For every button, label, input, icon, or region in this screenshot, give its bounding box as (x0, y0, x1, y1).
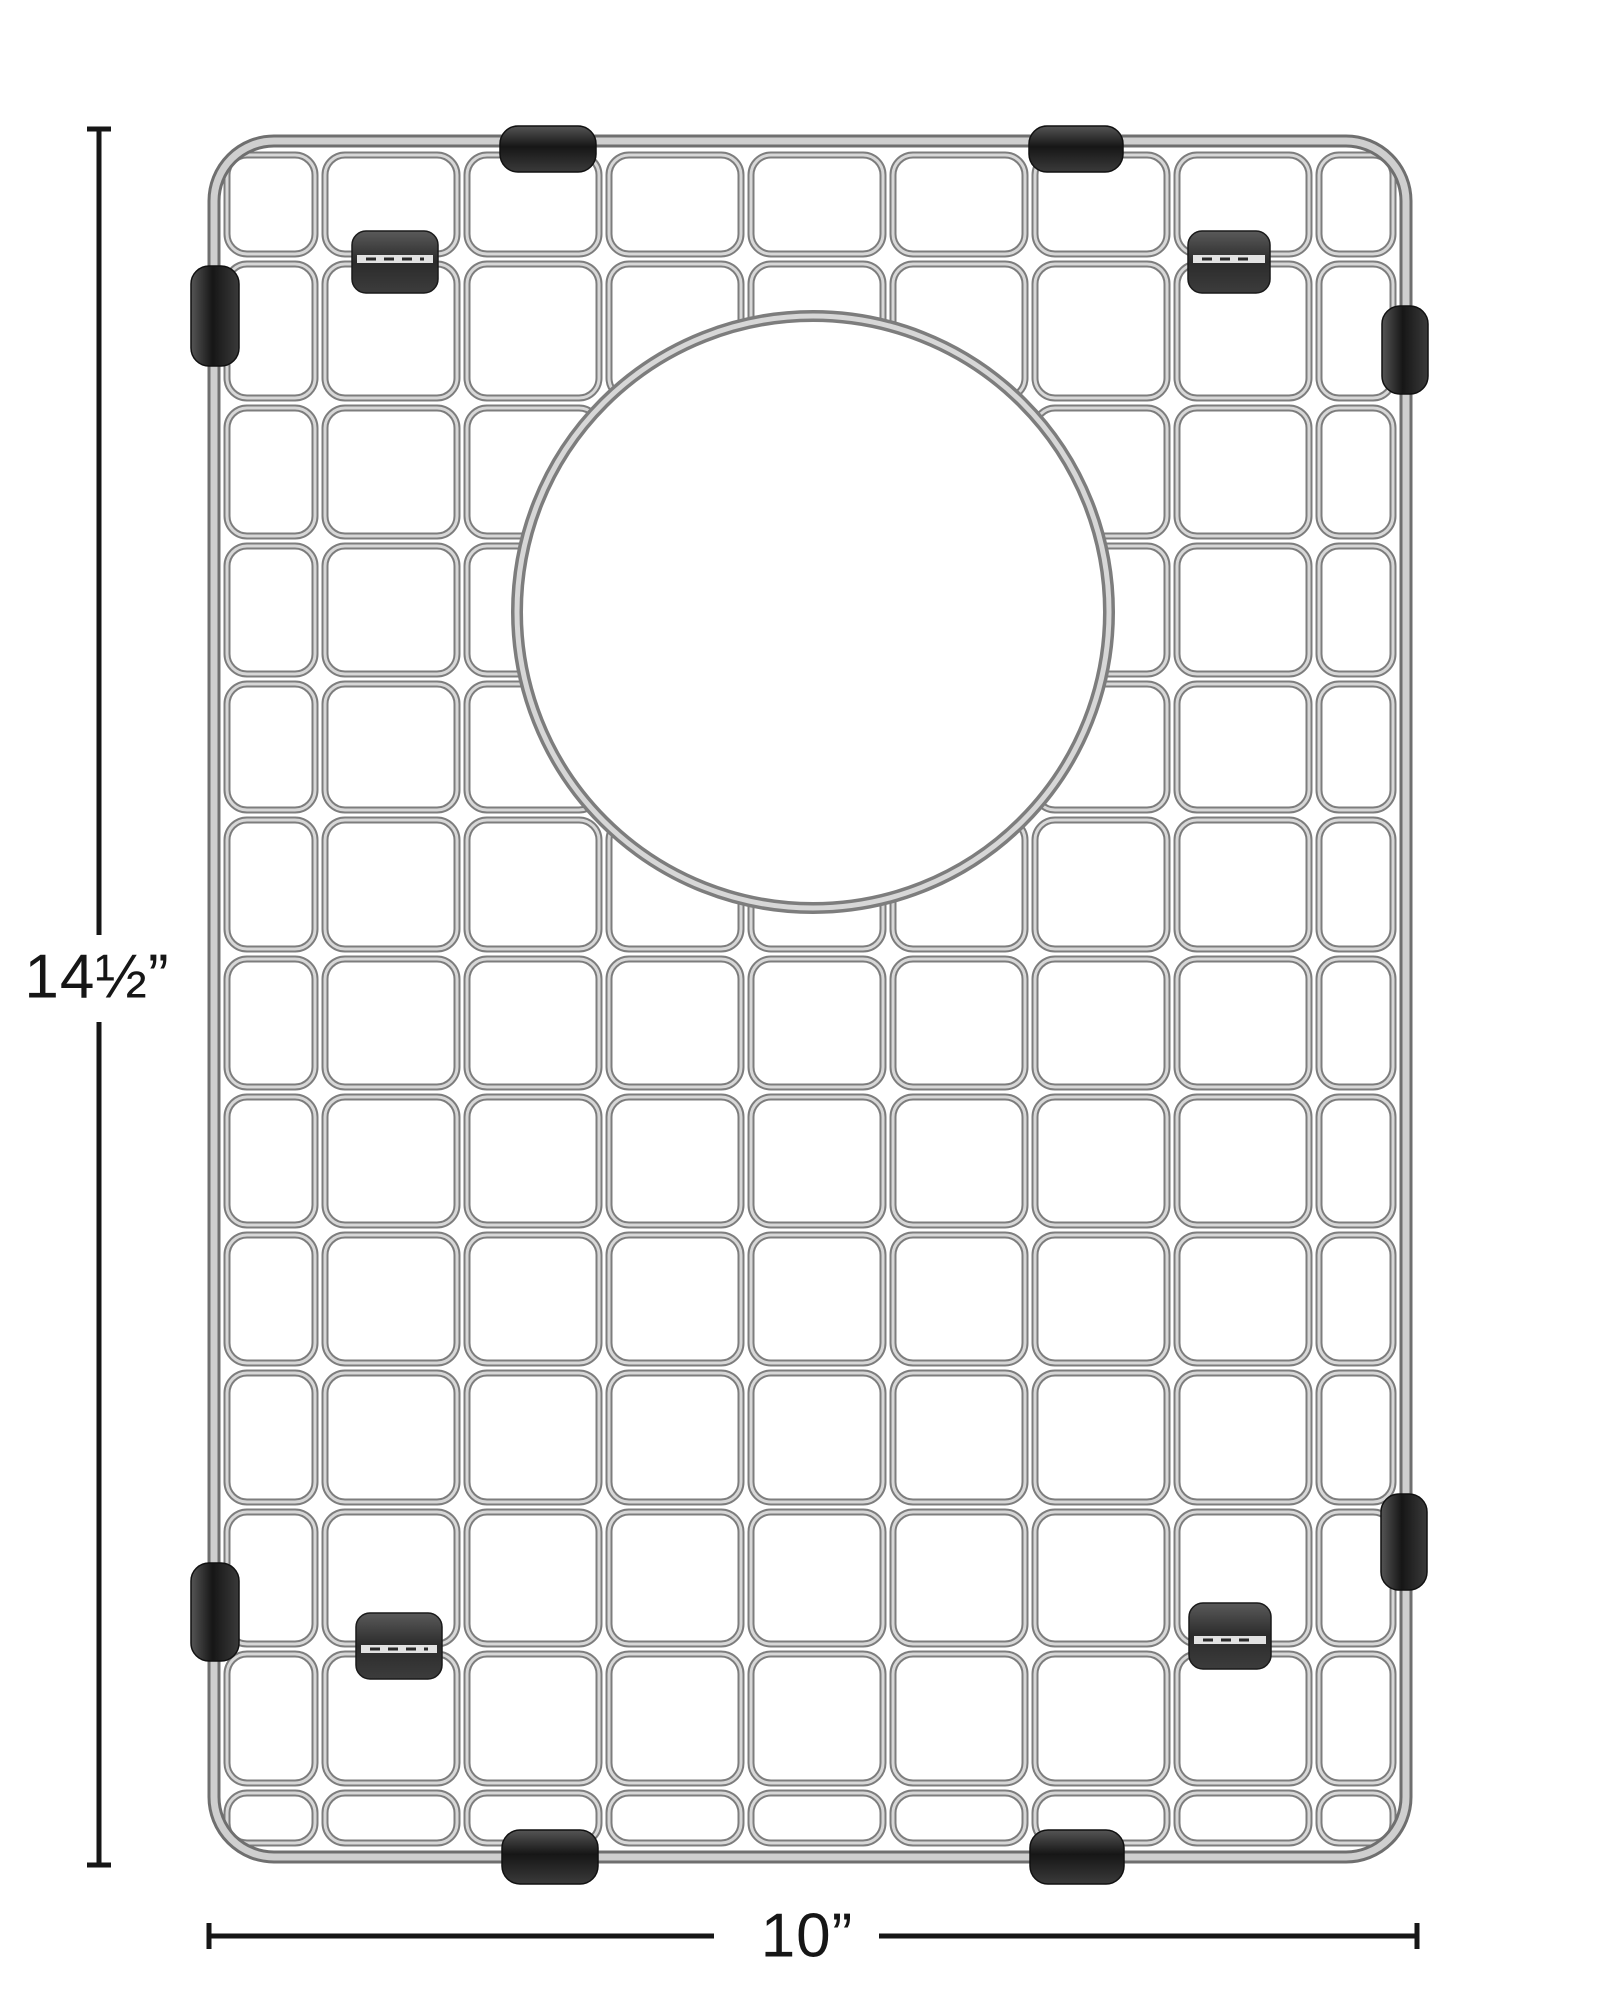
grid-cell-face (1319, 1235, 1393, 1363)
grid-cell (1035, 264, 1167, 398)
grid-cell (1035, 1373, 1167, 1502)
grid-cell-face (467, 959, 599, 1087)
grid-cell-face (227, 408, 315, 536)
grid-cell (893, 1512, 1025, 1644)
grid-cell-face (1177, 546, 1309, 674)
grid-cell (751, 1235, 883, 1363)
grid-cell (227, 264, 315, 398)
grid-cell (467, 1512, 599, 1644)
grid-cell (325, 546, 457, 674)
grid-cell (325, 408, 457, 536)
grid-cell-face (1035, 1654, 1167, 1783)
grid-cell-face (751, 155, 883, 254)
grid-cell (1035, 1097, 1167, 1225)
grid-cell (1319, 155, 1393, 254)
grid-cell-face (1177, 408, 1309, 536)
grid-cell-face (609, 155, 741, 254)
grid-cell-face (1035, 1512, 1167, 1644)
grid-cell (1177, 1097, 1309, 1225)
grid-cell (1035, 1235, 1167, 1363)
grid-cell-face (1177, 959, 1309, 1087)
grid-cell-face (893, 959, 1025, 1087)
grid-cell-face (467, 1373, 599, 1502)
grid-cell (467, 264, 599, 398)
grid-cell-face (1035, 820, 1167, 949)
grid-cell (751, 1654, 883, 1783)
grid-cell-face (325, 1373, 457, 1502)
grid-cell (893, 1235, 1025, 1363)
grid-cell-face (1319, 1654, 1393, 1783)
grid-cell-face (227, 1373, 315, 1502)
grid-cell-face (609, 1512, 741, 1644)
grid-cell (751, 1793, 883, 1843)
grid-cell-face (1035, 1373, 1167, 1502)
grid-cell-face (893, 1512, 1025, 1644)
grid-cell-face (325, 408, 457, 536)
grid-cell-face (325, 1235, 457, 1363)
grid-cell-face (1035, 959, 1167, 1087)
grid-cell-face (467, 1235, 599, 1363)
grid-cell-face (325, 684, 457, 810)
grid-cell (1177, 408, 1309, 536)
grid-cell (1319, 684, 1393, 810)
grid-cell (1035, 820, 1167, 949)
grid-cell (227, 1793, 315, 1843)
grid-cell-face (227, 1097, 315, 1225)
grid-cell-face (893, 1097, 1025, 1225)
grid-cell-face (325, 1097, 457, 1225)
height-dimension-label: 14½” (24, 942, 169, 1013)
grid-cell (893, 1373, 1025, 1502)
grid-cell-face (325, 546, 457, 674)
grid-cell-face (227, 820, 315, 949)
grid-cell-face (1319, 684, 1393, 810)
grid-cell (227, 1654, 315, 1783)
grid-cell-face (609, 959, 741, 1087)
grid-cell (1319, 1235, 1393, 1363)
grid-cell (1319, 1793, 1393, 1843)
grid-cell (609, 1654, 741, 1783)
grid-cell (325, 684, 457, 810)
grid-cell (1319, 820, 1393, 949)
grid-cell (1319, 546, 1393, 674)
grid-cell (609, 155, 741, 254)
product-dimension-diagram: 14½” 10” (0, 0, 1609, 2000)
grid-cell-face (1177, 1235, 1309, 1363)
grid-cell (1319, 408, 1393, 536)
grid-cell-face (893, 1654, 1025, 1783)
grid-cell (1319, 959, 1393, 1087)
grid-cell-face (609, 1097, 741, 1225)
grid-cell-face (227, 264, 315, 398)
grid-cell-face (325, 820, 457, 949)
grid-cell (467, 959, 599, 1087)
grid-cell-face (1035, 1235, 1167, 1363)
grid-cell-face (751, 1097, 883, 1225)
grid-cell (467, 1097, 599, 1225)
grid-cell (609, 1235, 741, 1363)
grid-cell (467, 1235, 599, 1363)
grid-cell (325, 1373, 457, 1502)
grid-cell (893, 1654, 1025, 1783)
grid-cell-face (1319, 820, 1393, 949)
grid-cell (325, 1793, 457, 1843)
grid-cell-face (227, 1512, 315, 1644)
grid-cell-face (893, 1235, 1025, 1363)
grid-cell-face (227, 1793, 315, 1843)
grid-cell-face (227, 959, 315, 1087)
grid-cell (751, 1373, 883, 1502)
grid-cell-face (325, 1793, 457, 1843)
grid-cell (227, 408, 315, 536)
rubber-foot (1382, 306, 1428, 394)
grid-cell-face (467, 1512, 599, 1644)
grid-cell (325, 1235, 457, 1363)
rubber-foot (1381, 1494, 1427, 1590)
grid-cell-face (467, 1654, 599, 1783)
grid-cell-face (227, 1235, 315, 1363)
grid-cell-face (467, 820, 599, 949)
grid-cell-face (1177, 1373, 1309, 1502)
grid-cell (1035, 1654, 1167, 1783)
grid-cell-face (1319, 546, 1393, 674)
grid-cell-face (1177, 1654, 1309, 1783)
grid-cell-face (751, 1512, 883, 1644)
grid-cell (609, 959, 741, 1087)
grid-cell-face (751, 1235, 883, 1363)
grid-cell (751, 155, 883, 254)
grid-cell (609, 1097, 741, 1225)
grid-cell (227, 1235, 315, 1363)
grid-cell (609, 1793, 741, 1843)
grid-cell-face (893, 1373, 1025, 1502)
grid-cell-face (751, 1654, 883, 1783)
grid-cell-face (893, 1793, 1025, 1843)
grid-cell (1177, 546, 1309, 674)
grid-cell (227, 959, 315, 1087)
grid-cell (751, 959, 883, 1087)
grid-cell (325, 1097, 457, 1225)
grid-cell (1177, 1654, 1309, 1783)
grid-cell-face (1035, 1097, 1167, 1225)
grid-cell-face (751, 1373, 883, 1502)
grid-cell (227, 1097, 315, 1225)
grid-cell-face (751, 1793, 883, 1843)
grid-cell (893, 155, 1025, 254)
grid-cell (893, 1097, 1025, 1225)
grid-cell (609, 1512, 741, 1644)
grid-cell (227, 1512, 315, 1644)
rubber-foot (1030, 1830, 1124, 1884)
grid-cell (1177, 1235, 1309, 1363)
grid-cell-face (467, 264, 599, 398)
rubber-foot (500, 126, 596, 172)
grid-cell (1177, 1793, 1309, 1843)
grid-cell-face (227, 155, 315, 254)
grid-cell (227, 820, 315, 949)
grid-cell (1319, 1373, 1393, 1502)
grid-cell (751, 1097, 883, 1225)
grid-cell (893, 959, 1025, 1087)
width-dimension-label: 10” (761, 1901, 854, 1972)
grid-cell (227, 684, 315, 810)
grid-cell (1177, 684, 1309, 810)
grid-cell (325, 820, 457, 949)
grid-cell (609, 1373, 741, 1502)
grid-cell-face (1177, 1097, 1309, 1225)
grid-cell (467, 820, 599, 949)
rubber-foot (191, 1563, 239, 1661)
grid-cell-face (1319, 155, 1393, 254)
grid-cell (1035, 1512, 1167, 1644)
sink-grid-illustration (0, 0, 1609, 2000)
grid-cell-face (609, 1235, 741, 1363)
grid-cell-face (467, 1097, 599, 1225)
grid-cell-face (609, 1373, 741, 1502)
grid-cell (893, 1793, 1025, 1843)
grid-cell-face (227, 546, 315, 674)
grid-cell (227, 546, 315, 674)
grid-cell-face (227, 1654, 315, 1783)
grid-cell-face (1319, 1373, 1393, 1502)
grid-cell-face (1177, 820, 1309, 949)
grid-cell (227, 1373, 315, 1502)
grid-cell-face (227, 684, 315, 810)
grid-cell-face (1319, 1793, 1393, 1843)
grid-cell-face (1319, 1097, 1393, 1225)
grid-cell (1319, 1097, 1393, 1225)
grid-cell-face (325, 959, 457, 1087)
grid-cell (467, 1373, 599, 1502)
grid-cell (1177, 1373, 1309, 1502)
grid-cell-face (1177, 684, 1309, 810)
grid-cell (1035, 959, 1167, 1087)
grid-cell-face (1177, 1793, 1309, 1843)
grid-cell (467, 1654, 599, 1783)
rubber-foot (191, 266, 239, 366)
grid-cell-face (609, 1654, 741, 1783)
rubber-foot (502, 1830, 598, 1884)
grid-cell (1319, 1654, 1393, 1783)
rubber-foot (1029, 126, 1123, 172)
grid-cell (1177, 820, 1309, 949)
grid-cell-face (1035, 264, 1167, 398)
grid-cell (1177, 959, 1309, 1087)
grid-cell (227, 155, 315, 254)
grid-cell-face (609, 1793, 741, 1843)
grid-cell-face (893, 155, 1025, 254)
grid-cell (751, 1512, 883, 1644)
grid-cell (325, 959, 457, 1087)
grid-cell-face (1319, 408, 1393, 536)
grid-cell-face (1319, 959, 1393, 1087)
grid-cell-face (751, 959, 883, 1087)
